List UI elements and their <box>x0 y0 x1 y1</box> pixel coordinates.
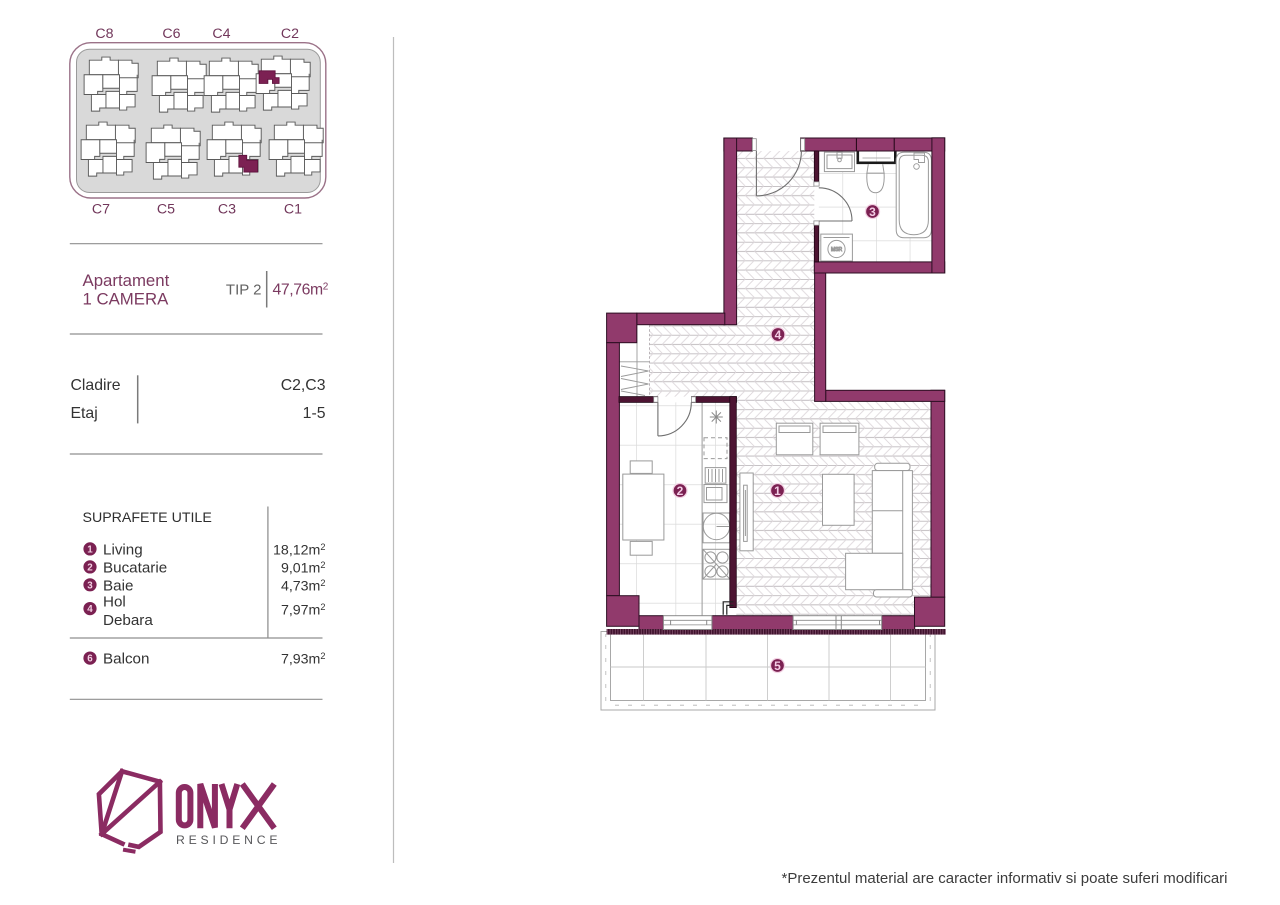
svg-text:2: 2 <box>677 484 684 498</box>
svg-text:C7: C7 <box>92 202 110 218</box>
svg-text:RESIDENCE: RESIDENCE <box>176 833 281 847</box>
svg-text:6: 6 <box>87 654 93 665</box>
svg-text:5: 5 <box>774 659 781 673</box>
svg-text:C3: C3 <box>218 202 236 218</box>
svg-text:*Prezentul material are caract: *Prezentul material are caracter informa… <box>781 870 1227 887</box>
svg-text:7,93m2: 7,93m2 <box>281 651 326 668</box>
svg-text:9,01m2: 9,01m2 <box>281 560 326 577</box>
svg-text:C4: C4 <box>212 26 230 42</box>
svg-text:C2: C2 <box>281 26 299 42</box>
svg-text:Living: Living <box>103 541 143 558</box>
svg-text:4: 4 <box>87 604 93 615</box>
svg-text:1 CAMERA: 1 CAMERA <box>83 290 170 309</box>
svg-text:1-5: 1-5 <box>303 405 326 422</box>
svg-text:C6: C6 <box>162 26 180 42</box>
svg-text:Apartament: Apartament <box>83 271 170 290</box>
svg-text:C8: C8 <box>95 26 113 42</box>
svg-text:4,73m2: 4,73m2 <box>281 578 326 595</box>
svg-text:MSR: MSR <box>831 247 843 253</box>
svg-text:TIP 2: TIP 2 <box>226 282 262 299</box>
svg-text:3: 3 <box>87 580 93 591</box>
svg-text:1: 1 <box>87 544 93 555</box>
svg-text:SUPRAFETE UTILE: SUPRAFETE UTILE <box>83 510 212 526</box>
svg-text:Etaj: Etaj <box>71 405 98 422</box>
svg-text:Cladire: Cladire <box>71 377 121 394</box>
svg-text:1: 1 <box>774 484 781 498</box>
svg-text:18,12m2: 18,12m2 <box>273 542 325 559</box>
svg-text:Bucatarie: Bucatarie <box>103 559 167 576</box>
svg-text:47,76m2: 47,76m2 <box>273 282 329 299</box>
svg-text:4: 4 <box>775 328 782 342</box>
svg-text:Baie: Baie <box>103 577 133 594</box>
svg-text:C1: C1 <box>284 202 302 218</box>
svg-text:2: 2 <box>87 562 93 573</box>
svg-text:C5: C5 <box>157 202 175 218</box>
svg-text:7,97m2: 7,97m2 <box>281 602 326 619</box>
svg-text:Debara: Debara <box>103 612 153 629</box>
svg-text:3: 3 <box>869 205 876 219</box>
svg-text:C2,C3: C2,C3 <box>281 377 326 394</box>
svg-text:Balcon: Balcon <box>103 651 149 668</box>
svg-text:Hol: Hol <box>103 594 126 611</box>
